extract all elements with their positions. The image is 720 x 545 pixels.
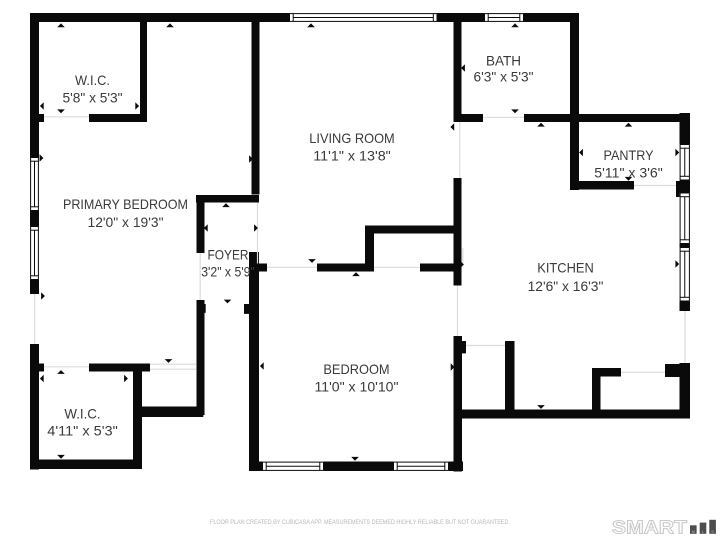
svg-text:M: M xyxy=(692,529,695,534)
svg-text:LIVING ROOM: LIVING ROOM xyxy=(309,130,395,146)
svg-text:BEDROOM: BEDROOM xyxy=(323,361,389,377)
svg-text:PRIMARY BEDROOM: PRIMARY BEDROOM xyxy=(63,196,188,212)
svg-text:4'11" x 5'3": 4'11" x 5'3" xyxy=(47,423,118,439)
svg-text:11'1" x 13'8": 11'1" x 13'8" xyxy=(313,148,391,164)
svg-text:5'8" x 5'3": 5'8" x 5'3" xyxy=(63,90,123,106)
svg-text:FOYER: FOYER xyxy=(208,247,249,263)
svg-text:5'11" x 3'6": 5'11" x 3'6" xyxy=(594,165,663,181)
svg-text:PANTRY: PANTRY xyxy=(604,147,655,163)
svg-text:W.I.C.: W.I.C. xyxy=(75,72,110,88)
svg-text:FLOOR PLAN CREATED BY CUBICASA: FLOOR PLAN CREATED BY CUBICASA APP. MEAS… xyxy=(210,519,510,526)
svg-text:3'2" x 5'9": 3'2" x 5'9" xyxy=(201,264,255,280)
svg-text:SMART: SMART xyxy=(612,517,688,538)
svg-text:12'6" x 16'3": 12'6" x 16'3" xyxy=(528,278,604,294)
svg-text:6'3" x 5'3": 6'3" x 5'3" xyxy=(474,69,534,85)
svg-text:11'0" x 10'10": 11'0" x 10'10" xyxy=(315,378,399,394)
svg-text:12'0" x 19'3": 12'0" x 19'3" xyxy=(88,214,164,230)
svg-text:W.I.C.: W.I.C. xyxy=(64,406,100,422)
svg-text:S: S xyxy=(711,529,714,534)
svg-text:KITCHEN: KITCHEN xyxy=(537,259,594,275)
svg-text:BATH: BATH xyxy=(486,53,521,69)
